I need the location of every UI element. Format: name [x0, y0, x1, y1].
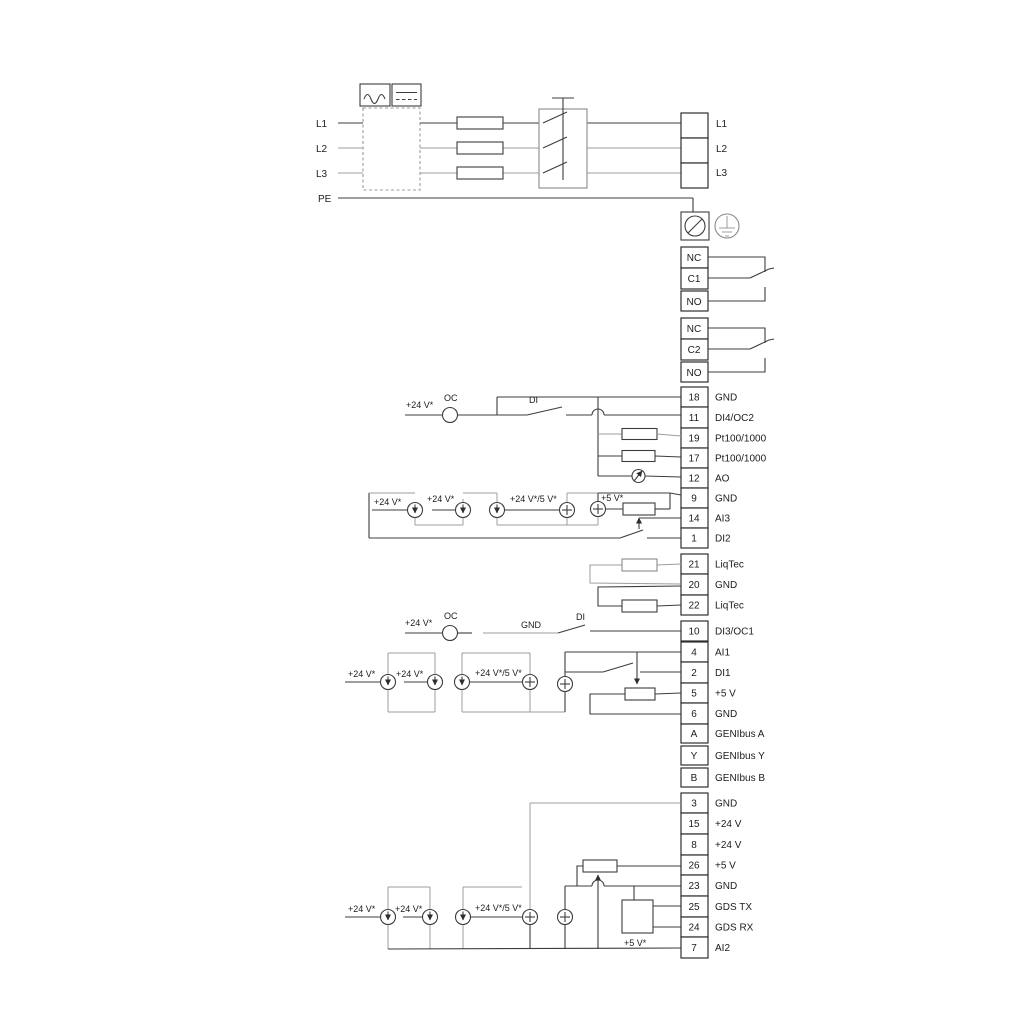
annotation-24v: +24 V*: [348, 669, 376, 679]
terminal-stack-main: 18 11 19 17 12 9 14 1 GND DI4/OC2 Pt100/…: [681, 387, 767, 548]
terminal-23-label: GND: [715, 881, 737, 892]
open-collector-symbol: [443, 408, 458, 423]
terminal-20-label: GND: [715, 580, 737, 591]
terminal-stack-genibus: A Y B GENIbus A GENIbus Y GENIbus B: [681, 724, 765, 787]
gds-sensor-box: [622, 900, 653, 933]
terminal-24: 24: [688, 923, 700, 934]
power-section: L1 L2 L3 PE: [316, 84, 739, 240]
terminal-stack-liqtec: 21 20 22 LiqTec GND LiqTec: [590, 554, 744, 615]
terminal-3: 3: [691, 799, 697, 810]
terminal-17-label: Pt100/1000: [715, 454, 767, 465]
terminal-25-label: GDS TX: [715, 902, 752, 913]
annotation-5v: +5 V*: [624, 938, 647, 948]
terminal-26-label: +5 V: [715, 861, 736, 872]
emc-filter-box: [363, 108, 420, 190]
terminal-2-label: DI1: [715, 668, 731, 679]
pt100-sensor-1: [622, 429, 657, 440]
terminal-15-label: +24 V: [715, 819, 742, 830]
dc-line-icon: [392, 84, 421, 106]
input-label-l3: L3: [316, 169, 328, 180]
pe-ground: [338, 198, 739, 240]
annotation-24v-5v: +24 V*/5 V*: [510, 494, 557, 504]
terminal-4: 4: [691, 648, 697, 659]
terminal-6-label: GND: [715, 709, 737, 720]
earth-ground-icon: [715, 214, 739, 238]
terminal-21-label: LiqTec: [715, 560, 744, 571]
input-label-l2: L2: [316, 144, 328, 155]
terminal-stack-bottom: 3 15 8 26 23 25 24 7 GND +24 V +24 V +5 …: [681, 793, 754, 958]
annotation-di: DI: [576, 612, 585, 622]
annotation-24v-5v: +24 V*/5 V*: [475, 668, 522, 678]
fuse-l3: [457, 167, 503, 179]
wiring-diagram-page: L1 L2 L3 PE: [0, 0, 1024, 1024]
terminal-9: 9: [691, 494, 697, 505]
annotation-24v: +24 V*: [348, 904, 376, 914]
terminal-15: 15: [688, 819, 700, 830]
terminal-10: 10: [688, 627, 700, 638]
terminal-21: 21: [688, 560, 700, 571]
fuse-l1: [457, 117, 503, 129]
terminal-11-label: DI4/OC2: [715, 413, 754, 424]
open-collector-symbol: [443, 626, 458, 641]
output-label-l3: L3: [716, 168, 728, 179]
potentiometer-ai2: [583, 860, 617, 872]
ac-wave-icon: [360, 84, 390, 106]
terminal-25: 25: [688, 902, 700, 913]
terminal-11: 11: [689, 413, 700, 424]
relay1-no: NO: [687, 297, 702, 308]
wiring-diagram: L1 L2 L3 PE: [0, 0, 1024, 1024]
terminal-22: 22: [688, 601, 700, 612]
di3-circuit: +24 V* OC GND DI: [405, 611, 681, 641]
terminal-5-label: +5 V: [715, 689, 736, 700]
input-label-l1: L1: [316, 119, 328, 130]
phase-wires: [338, 123, 681, 173]
annotation-oc: OC: [444, 393, 458, 403]
relay1-nc: NC: [687, 253, 701, 264]
annotation-di: DI: [529, 395, 538, 405]
terminal-12-label: AO: [715, 474, 730, 485]
terminal-5: 5: [691, 689, 697, 700]
annotation-24v: +24 V*: [396, 669, 424, 679]
liqtec-sensor-wiring: [590, 559, 681, 612]
annotation-oc: OC: [444, 611, 458, 621]
terminal-3-label: GND: [715, 799, 737, 810]
fuse-l2: [457, 142, 503, 154]
relay-1: NC C1 NO: [681, 247, 774, 311]
ai1-di1-circuit: +24 V* +24 V* +24 V*/5 V*: [345, 652, 681, 714]
annotation-5v: +5 V*: [601, 493, 624, 503]
annotation-gnd: GND: [521, 620, 542, 630]
fuses: [457, 117, 503, 179]
terminal-14-label: AI3: [715, 514, 730, 525]
terminal-4-label: AI1: [715, 648, 730, 659]
terminal-1: 1: [691, 534, 697, 545]
terminal-7: 7: [691, 943, 697, 954]
ai3-di2-circuit: +24 V* +24 V* +24 V*/5 V* +5 V*: [369, 493, 681, 538]
annotation-24v: +24 V*: [374, 497, 402, 507]
terminal-22-label: LiqTec: [715, 601, 744, 612]
relay1-c1: C1: [688, 274, 701, 285]
annotation-24v-5v: +24 V*/5 V*: [475, 903, 522, 913]
terminal-10-label: DI3/OC1: [715, 627, 754, 638]
terminal-7-label: AI2: [715, 943, 730, 954]
annotation-24v: +24 V*: [405, 618, 433, 628]
terminal-24-label: GDS RX: [715, 923, 754, 934]
input-label-pe: PE: [318, 194, 332, 205]
annotation-24v: +24 V*: [427, 494, 455, 504]
terminal-b: B: [691, 773, 698, 784]
liqtec-sensor-1: [622, 559, 657, 571]
annotation-24v: +24 V*: [406, 400, 434, 410]
terminal-stack-analog: 4 2 5 6 AI1 DI1 +5 V GND: [681, 642, 737, 724]
potentiometer-ai3: [623, 503, 655, 515]
terminal-20: 20: [688, 580, 700, 591]
terminal-8: 8: [691, 840, 697, 851]
di4-oc2-circuit: +24 V* OC DI: [405, 393, 681, 483]
terminal-14: 14: [688, 514, 700, 525]
terminal-y-label: GENIbus Y: [715, 751, 765, 762]
terminal-1-label: DI2: [715, 534, 731, 545]
relay2-no: NO: [687, 368, 702, 379]
terminal-8-label: +24 V: [715, 840, 742, 851]
liqtec-sensor-2: [622, 600, 657, 612]
pt100-sensor-2: [622, 451, 655, 462]
potentiometer-ai1: [625, 688, 655, 700]
terminal-a-label: GENIbus A: [715, 729, 765, 740]
terminal-19: 19: [688, 434, 700, 445]
terminal-26: 26: [688, 861, 700, 872]
ai2-gds-circuit: +5 V* +24 V* +24 V* +24 V*/5 V*: [345, 803, 681, 949]
terminal-b-label: GENIbus B: [715, 773, 765, 784]
output-label-l2: L2: [716, 144, 728, 155]
terminal-2: 2: [691, 668, 697, 679]
terminal-6: 6: [691, 709, 697, 720]
terminal-17: 17: [688, 454, 700, 465]
relay-2: NC C2 NO: [681, 318, 774, 382]
terminal-9-label: GND: [715, 494, 737, 505]
terminal-y: Y: [691, 751, 698, 762]
annotation-24v: +24 V*: [395, 904, 423, 914]
terminal-12: 12: [688, 474, 700, 485]
terminal-a: A: [691, 729, 698, 740]
terminal-18-label: GND: [715, 393, 737, 404]
relay2-c2: C2: [688, 345, 701, 356]
terminal-18: 18: [688, 393, 700, 404]
main-switch: [539, 98, 587, 188]
relay2-nc: NC: [687, 324, 701, 335]
terminal-19-label: Pt100/1000: [715, 434, 767, 445]
terminal-23: 23: [688, 881, 700, 892]
output-label-l1: L1: [716, 119, 728, 130]
motor-terminal-block: L1 L2 L3: [681, 113, 728, 188]
